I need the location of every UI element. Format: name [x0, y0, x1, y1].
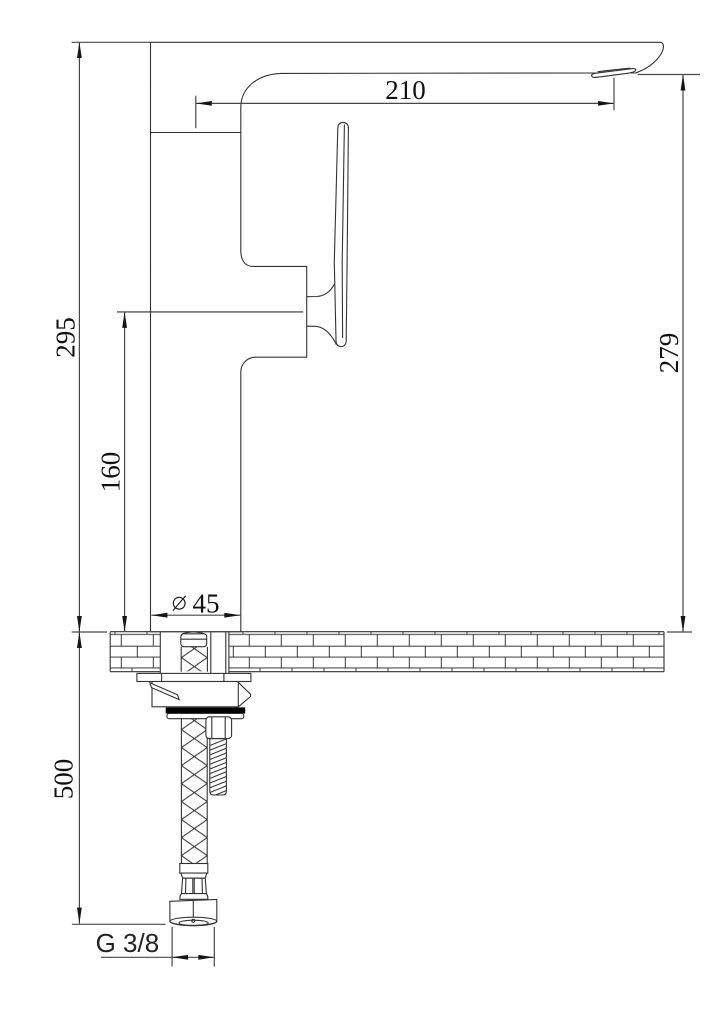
svg-text:160: 160	[96, 452, 126, 493]
svg-text:G 3/8: G 3/8	[96, 928, 160, 958]
svg-text:279: 279	[654, 333, 684, 374]
svg-text:210: 210	[385, 75, 426, 105]
svg-text:500: 500	[49, 759, 79, 800]
svg-text:295: 295	[51, 317, 81, 358]
svg-text:45: 45	[193, 589, 220, 619]
